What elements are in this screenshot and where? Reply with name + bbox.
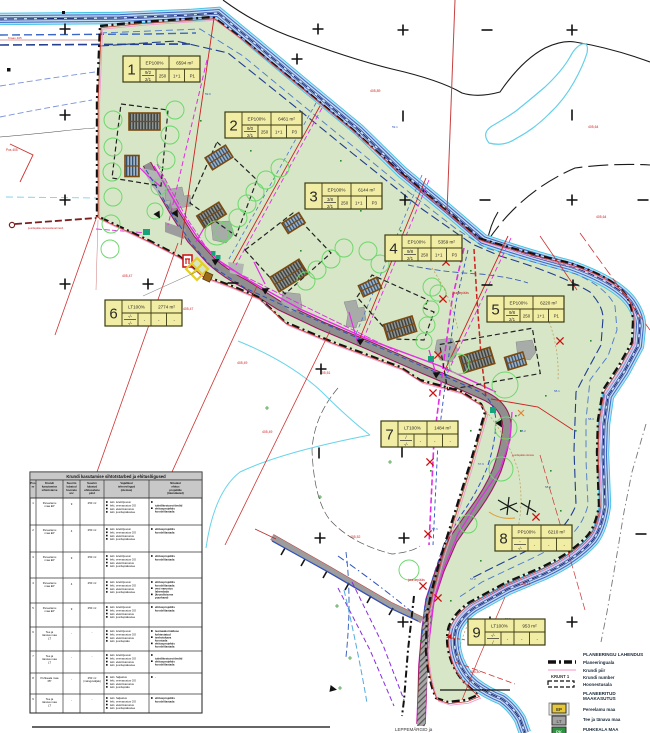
svg-text:57.9: 57.9 <box>478 462 484 466</box>
svg-text:2/1: 2/1 <box>145 77 152 82</box>
svg-text:juurdepääs olemas: juurdepääs olemas <box>511 453 535 457</box>
svg-text:953 m²: 953 m² <box>522 624 537 629</box>
svg-text:juurdepääs: juurdepääs <box>407 578 425 582</box>
svg-text:kooskõlastada: kooskõlastada <box>155 557 175 561</box>
svg-text:kooskõlastada: kooskõlastada <box>155 608 175 612</box>
svg-text:-: - <box>71 631 72 635</box>
svg-text:405,40: 405,40 <box>470 670 480 674</box>
svg-text:1+1: 1+1 <box>275 130 283 135</box>
svg-text:(olemas): (olemas) <box>121 488 133 492</box>
svg-text:maa EP: maa EP <box>45 504 55 508</box>
svg-text:Krundi kasutamise sihtotstarbe: Krundi kasutamise sihtotstarbed ja ehitu… <box>66 474 166 479</box>
svg-text:P3: P3 <box>292 130 298 135</box>
svg-text:405,52: 405,52 <box>350 535 360 539</box>
svg-text:250 m²: 250 m² <box>88 528 97 532</box>
svg-text:P3: P3 <box>372 201 378 206</box>
svg-text:LEPPEMÄRGID ja: LEPPEMÄRGID ja <box>395 726 433 732</box>
svg-text:1: 1 <box>127 62 135 79</box>
svg-text:8: 8 <box>499 531 507 548</box>
svg-text:250: 250 <box>523 314 531 319</box>
svg-text:405,64: 405,64 <box>596 215 606 219</box>
svg-text:PLANEERINGU LAHENDUS: PLANEERINGU LAHENDUS <box>583 652 643 657</box>
svg-text:6220 m²: 6220 m² <box>540 301 557 306</box>
svg-text:maa EP: maa EP <box>45 558 55 562</box>
svg-text:Pereelamu maa: Pereelamu maa <box>583 707 616 712</box>
svg-text:Hoonestusala: Hoonestusala <box>583 682 612 687</box>
svg-text:58.3: 58.3 <box>588 417 594 421</box>
svg-text:Krundi piir: Krundi piir <box>583 668 605 673</box>
svg-text:EP100%: EP100% <box>510 301 528 306</box>
svg-text:1+1: 1+1 <box>537 314 545 319</box>
svg-text:2/1: 2/1 <box>407 256 414 261</box>
svg-text:58.1: 58.1 <box>554 389 560 393</box>
svg-text:405,47: 405,47 <box>122 274 132 278</box>
svg-text:5: 5 <box>491 302 499 319</box>
svg-text:arv: arv <box>69 491 74 495</box>
svg-text:kooskõlastada: kooskõlastada <box>155 645 175 649</box>
svg-text:9/8: 9/8 <box>509 310 516 315</box>
svg-text:59.1: 59.1 <box>392 125 398 129</box>
svg-text:-: - <box>92 654 93 658</box>
svg-text:kooskõlastada: kooskõlastada <box>155 530 175 534</box>
svg-text:P3: P3 <box>452 253 458 258</box>
svg-text:2/1: 2/1 <box>509 317 516 322</box>
svg-text:lekt. juurdepääsutee: lekt. juurdepääsutee <box>110 706 136 710</box>
svg-text:-/-: -/- <box>491 633 496 638</box>
svg-text:250: 250 <box>159 74 167 79</box>
svg-text:5359 m²: 5359 m² <box>438 240 455 245</box>
svg-text:P1: P1 <box>554 314 560 319</box>
svg-text:lekt. juurdepääs: lekt. juurdepääs <box>110 639 130 643</box>
svg-text:LT: LT <box>48 636 51 640</box>
svg-text:9/0: 9/0 <box>247 126 254 131</box>
svg-text:250: 250 <box>261 130 269 135</box>
svg-text:maa EP: maa EP <box>45 584 55 588</box>
svg-text:2774 m²: 2774 m² <box>158 305 175 310</box>
svg-text:PP: PP <box>48 679 52 683</box>
svg-text:KRUNT 1: KRUNT 1 <box>551 674 570 679</box>
svg-text:-: - <box>71 655 72 659</box>
svg-text:-/-: -/- <box>404 442 409 447</box>
svg-text:EP100%: EP100% <box>146 61 164 66</box>
svg-text:3: 3 <box>309 189 317 206</box>
svg-text:405,47: 405,47 <box>183 307 193 311</box>
svg-text:LT100%: LT100% <box>491 624 508 629</box>
svg-text:250: 250 <box>421 253 429 258</box>
svg-text:4: 4 <box>389 241 397 258</box>
svg-text:250 m²: 250 m² <box>88 606 97 610</box>
svg-text:2/1: 2/1 <box>327 204 334 209</box>
svg-text:maa EP: maa EP <box>45 531 55 535</box>
svg-text:250: 250 <box>341 201 349 206</box>
svg-text:kooskõlastada: kooskõlastada <box>155 699 175 703</box>
svg-text:LT: LT <box>48 660 51 664</box>
svg-text:57.6: 57.6 <box>432 527 438 531</box>
svg-text:58.4: 58.4 <box>545 485 551 489</box>
svg-text:6461 m²: 6461 m² <box>278 117 295 122</box>
svg-text:1484 m²: 1484 m² <box>434 426 451 431</box>
svg-text:-: - <box>71 677 72 681</box>
svg-text:MAAKASUTUS: MAAKASUTUS <box>583 696 616 701</box>
svg-text:2: 2 <box>229 118 237 135</box>
svg-text:-/-: -/- <box>128 314 133 319</box>
svg-text:59.6: 59.6 <box>205 92 211 96</box>
svg-text:lekt. juurdepääsutee: lekt. juurdepääsutee <box>110 510 136 514</box>
svg-text:Tee ja tänava maa: Tee ja tänava maa <box>583 717 621 722</box>
svg-text:-: - <box>92 697 93 701</box>
svg-text:9/8: 9/8 <box>407 249 414 254</box>
svg-text:Krundi number: Krundi number <box>583 675 615 680</box>
svg-text:pind: pind <box>89 491 95 495</box>
svg-text:250 m²: 250 m² <box>88 501 97 505</box>
svg-text:EP100%: EP100% <box>248 117 266 122</box>
svg-text:405,44: 405,44 <box>520 582 530 586</box>
svg-text:kooskõlastada: kooskõlastada <box>155 510 175 514</box>
svg-text:juurdepääs olemasolevalt teelt: juurdepääs olemasolevalt teelt <box>27 226 63 230</box>
svg-text:LT100%: LT100% <box>128 305 145 310</box>
svg-text:6: 6 <box>109 306 117 323</box>
svg-text:lekt. juurdepääsutee: lekt. juurdepääsutee <box>110 564 136 568</box>
svg-text:(mänguväljak): (mänguväljak) <box>83 679 101 683</box>
svg-text:405,49: 405,49 <box>237 361 247 365</box>
svg-text:Planeeringuala: Planeeringuala <box>583 660 615 665</box>
svg-text:LT100%: LT100% <box>404 426 421 431</box>
svg-text:PUHKEALA MAA: PUHKEALA MAA <box>583 727 619 732</box>
svg-text:EP: EP <box>556 707 562 712</box>
svg-text:-: - <box>71 698 72 702</box>
svg-text:250 m²: 250 m² <box>88 555 97 559</box>
svg-text:maa EP: maa EP <box>45 609 55 613</box>
svg-text:3/8: 3/8 <box>327 197 334 202</box>
svg-text:250 m²: 250 m² <box>88 581 97 585</box>
svg-text:9/2: 9/2 <box>145 70 152 75</box>
svg-text:6594 m²: 6594 m² <box>176 61 193 66</box>
svg-text:-/-: -/- <box>128 321 133 326</box>
svg-text:Kraav 405: Kraav 405 <box>8 36 22 40</box>
svg-text:6210 m²: 6210 m² <box>548 530 565 535</box>
svg-text:lekt. juurdepääsutee: lekt. juurdepääsutee <box>110 537 136 541</box>
svg-text:EP100%: EP100% <box>328 188 346 193</box>
svg-text:405,49: 405,49 <box>262 430 272 434</box>
svg-text:P1: P1 <box>190 74 196 79</box>
svg-text:puurkaev): puurkaev) <box>155 596 168 600</box>
svg-text:PK: PK <box>556 730 563 733</box>
svg-text:-: - <box>92 630 93 634</box>
svg-text:7: 7 <box>385 427 393 444</box>
svg-text:1+1: 1+1 <box>435 253 443 258</box>
svg-text:EP100%: EP100% <box>408 240 426 245</box>
svg-text:1+1: 1+1 <box>173 74 181 79</box>
svg-text:LT: LT <box>48 703 51 707</box>
svg-text:-/-: -/- <box>518 546 523 551</box>
svg-text:PP100%: PP100% <box>518 530 536 535</box>
svg-text:Pos 405: Pos 405 <box>6 148 18 152</box>
svg-text:-: - <box>155 675 156 679</box>
svg-text:lekt. juurdepääsutee: lekt. juurdepääsutee <box>110 615 136 619</box>
svg-text:lekt. juurdepääsutee: lekt. juurdepääsutee <box>110 590 136 594</box>
svg-text:9: 9 <box>472 625 480 642</box>
svg-text:57.2: 57.2 <box>470 577 476 581</box>
svg-text:405,89: 405,89 <box>370 89 380 93</box>
svg-text:405,64: 405,64 <box>588 125 598 129</box>
svg-text:sihtotstarve: sihtotstarve <box>42 488 58 492</box>
svg-text:(täiendavad): (täiendavad) <box>167 491 184 495</box>
svg-text:6144 m²: 6144 m² <box>358 188 375 193</box>
svg-text:lekt. juurdepääsutee: lekt. juurdepääsutee <box>110 663 136 667</box>
svg-text:kooskõlastada: kooskõlastada <box>155 663 175 667</box>
svg-text:2/1: 2/1 <box>247 133 254 138</box>
svg-text:lekt. juurdepääs: lekt. juurdepääs <box>110 685 130 689</box>
svg-text:juurdepääs: juurdepääs <box>451 291 469 295</box>
svg-text:1+1: 1+1 <box>355 201 363 206</box>
svg-text:LT: LT <box>556 719 561 724</box>
